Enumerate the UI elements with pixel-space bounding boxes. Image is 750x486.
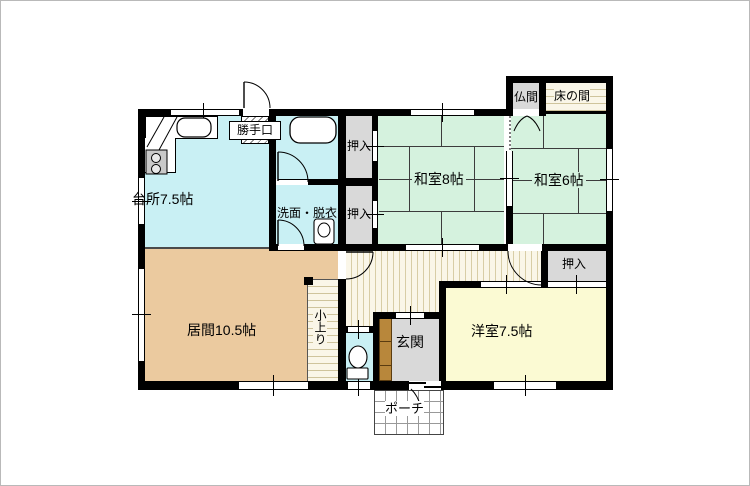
wall-mid-d — [542, 244, 606, 251]
fusuma-tick — [410, 306, 411, 325]
label-western: 洋室7.5帖 — [471, 323, 532, 339]
sliding-door-western — [481, 281, 541, 288]
label-closet-left-top: 押入 — [347, 139, 371, 153]
window-tick — [132, 314, 151, 315]
wall-closet-divider — [346, 178, 372, 186]
wall-closet-east-a — [372, 116, 378, 131]
wall-bump-top — [506, 76, 613, 83]
wall-bath-washroom — [308, 179, 338, 185]
wall-mid-a — [269, 244, 278, 251]
window-tick — [358, 375, 359, 396]
wall-mid-b — [304, 244, 406, 251]
fusuma-tick — [442, 238, 443, 257]
tatami-line — [409, 146, 410, 211]
label-washroom: 洗面・脱衣 — [277, 206, 337, 220]
opening-bath-door — [278, 179, 308, 185]
label-entrance: 玄関 — [396, 334, 424, 350]
wall-western-west — [439, 281, 446, 381]
wall-western-north — [439, 281, 481, 288]
label-tokonoma: 床の間 — [554, 89, 590, 103]
floor-plan: 台所7.5帖 居間10.5帖 洗面・脱衣 和室8帖 和室6帖 洋室7.5帖 玄関… — [0, 0, 750, 486]
tokonoma-edge — [544, 111, 606, 114]
label-butsuma: 仏間 — [514, 90, 538, 104]
label-closet-right: 押入 — [562, 257, 586, 271]
opening-front-door — [409, 381, 441, 390]
wall-east — [606, 76, 613, 390]
hallway-toilet-access — [346, 312, 373, 326]
tatami-line — [543, 116, 544, 148]
opening-butsuma — [513, 109, 539, 116]
wall-central-upper — [338, 116, 346, 251]
wall-tokonoma-divider — [539, 83, 546, 116]
tatami-line — [511, 213, 606, 214]
room-bath — [276, 116, 338, 179]
label-living: 居間10.5帖 — [187, 322, 256, 338]
label-washitsu8: 和室8帖 — [412, 171, 466, 187]
wall-washitsu-divider-lower — [506, 206, 513, 244]
label-closet-left-bottom: 押入 — [347, 207, 371, 221]
shoe-cabinet-shelf-line — [379, 341, 392, 342]
label-kitchen: 台所7.5帖 — [132, 191, 193, 207]
label-koagari: 小上り — [313, 309, 327, 345]
shoe-cabinet-shelf-line — [379, 365, 392, 366]
opening-washroom-door — [278, 244, 304, 251]
tatami-line — [511, 148, 606, 149]
kitchen-counter — [145, 116, 218, 139]
window-tick — [203, 103, 204, 122]
label-washitsu6: 和室6帖 — [532, 172, 586, 188]
window-tick — [600, 179, 619, 180]
wall-mid-c — [479, 244, 508, 251]
fusuma-closet-right — [548, 281, 606, 288]
window-washitsu6-east — [606, 149, 613, 211]
window-living-west — [138, 269, 145, 361]
window-toilet-south — [348, 381, 370, 390]
opening-hall-door — [338, 251, 346, 279]
fusuma-tick — [358, 320, 359, 339]
hallway-top — [346, 251, 541, 281]
wall-entrance-west — [373, 312, 379, 381]
label-porch: ポーチ — [385, 401, 424, 416]
window-tick — [273, 375, 274, 396]
room-toilet — [346, 333, 373, 381]
fusuma-tick — [576, 275, 577, 294]
wall-closet-east-c — [372, 228, 378, 244]
tatami-line — [379, 146, 504, 147]
wall-closet-east-b — [372, 161, 378, 201]
fusuma-tick — [506, 275, 507, 294]
label-backdoor: 勝手口 — [229, 121, 281, 140]
kitchen-counter-corner — [145, 138, 176, 173]
wall-entrance-north-b — [424, 312, 444, 319]
kitchen-living-boundary — [145, 247, 269, 249]
window-tick — [525, 375, 526, 396]
wall-koagari-notch — [304, 277, 313, 285]
window-kitchen-north — [171, 109, 239, 116]
hallway-mid — [346, 281, 439, 312]
wall-bump-left — [506, 76, 513, 116]
tatami-line — [474, 146, 475, 211]
opening-washitsu6-door — [508, 244, 542, 251]
wall-closet-right-west — [541, 249, 548, 288]
tatami-line — [543, 213, 544, 244]
window-tick — [442, 103, 443, 122]
opening-backdoor — [243, 109, 269, 116]
backdoor-swing-arc — [244, 82, 270, 108]
wall-toilet-north-a — [338, 326, 348, 333]
fusuma-tick — [500, 178, 519, 179]
shoe-cabinet — [379, 317, 392, 381]
